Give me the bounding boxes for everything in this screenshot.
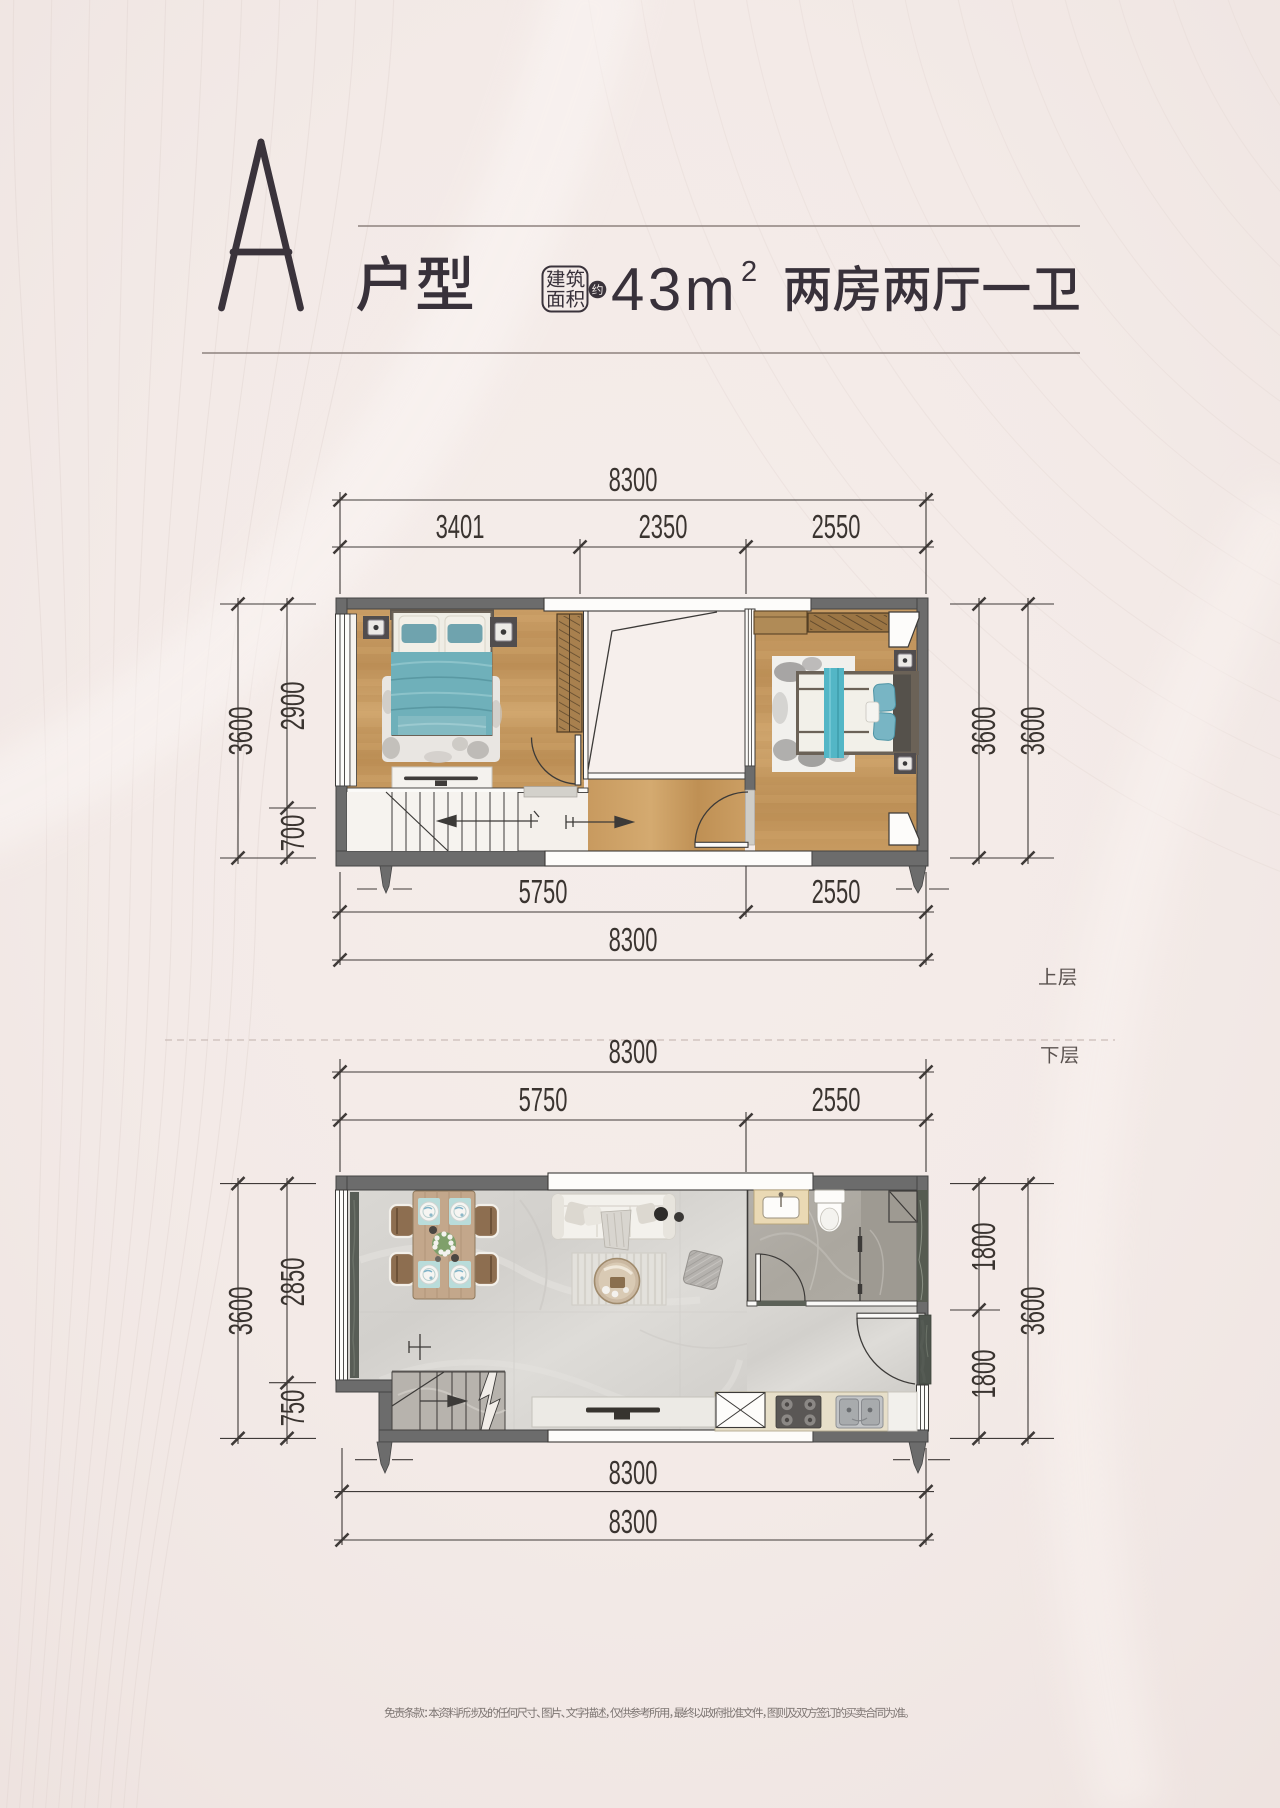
svg-text:2550: 2550: [812, 508, 861, 545]
svg-text:2550: 2550: [812, 1081, 861, 1118]
svg-text:8300: 8300: [609, 1503, 658, 1540]
svg-text:8300: 8300: [609, 1454, 658, 1491]
svg-text:2550: 2550: [812, 873, 861, 910]
svg-text:3600: 3600: [965, 707, 1002, 756]
svg-text:2850: 2850: [274, 1258, 311, 1307]
svg-text:8300: 8300: [609, 461, 658, 498]
svg-text:3600: 3600: [222, 1287, 259, 1336]
svg-text:3401: 3401: [436, 508, 485, 545]
svg-text:5750: 5750: [519, 873, 568, 910]
svg-text:3600: 3600: [1014, 1287, 1051, 1336]
svg-text:3600: 3600: [1014, 707, 1051, 756]
svg-text:1800: 1800: [965, 1350, 1002, 1399]
svg-text:1800: 1800: [965, 1223, 1002, 1272]
svg-text:2900: 2900: [274, 682, 311, 731]
svg-text:2350: 2350: [639, 508, 688, 545]
svg-text:2: 2: [741, 256, 757, 288]
svg-text:700: 700: [274, 815, 311, 852]
svg-text:3600: 3600: [222, 707, 259, 756]
svg-text:750: 750: [274, 1390, 311, 1427]
svg-text:43m: 43m: [611, 256, 738, 323]
svg-text:8300: 8300: [609, 1033, 658, 1070]
svg-text:8300: 8300: [609, 921, 658, 958]
svg-text:5750: 5750: [519, 1081, 568, 1118]
